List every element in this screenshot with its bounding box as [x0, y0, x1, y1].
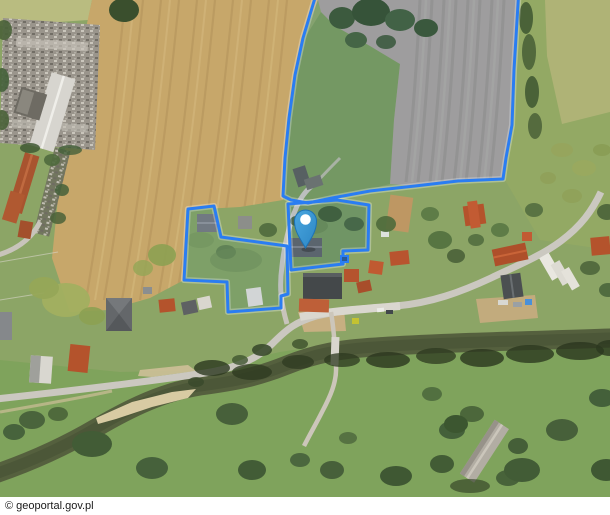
marker-shadow — [302, 247, 316, 252]
parcel-boundary-annex[interactable] — [341, 256, 348, 262]
map-canvas[interactable] — [0, 0, 610, 497]
attribution-text: © geoportal.gov.pl — [0, 497, 94, 515]
geoportal-map-view: © geoportal.gov.pl — [0, 0, 610, 515]
hip-roof-house — [106, 298, 132, 331]
attribution-bar: © geoportal.gov.pl — [0, 497, 610, 515]
marker-dot — [300, 214, 311, 225]
parcel-boundary-north-field[interactable] — [283, 0, 519, 203]
aerial-imagery — [0, 0, 610, 497]
